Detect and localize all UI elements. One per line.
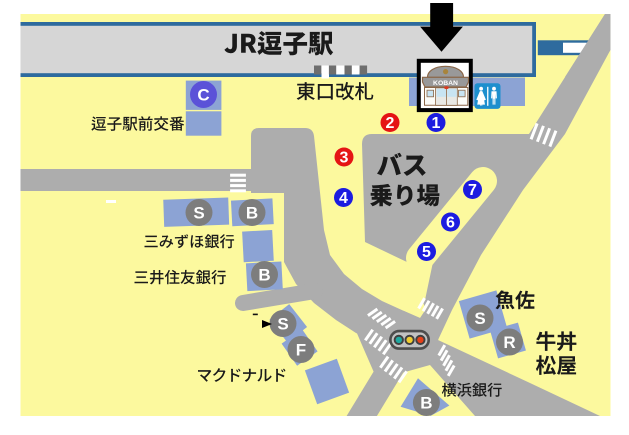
svg-text:B: B (420, 394, 432, 413)
svg-text:C: C (197, 86, 209, 105)
svg-text:1: 1 (432, 115, 441, 132)
svg-text:2: 2 (386, 115, 395, 132)
svg-text:7: 7 (468, 182, 477, 199)
svg-text:S: S (474, 309, 485, 328)
svg-text:S: S (193, 204, 204, 223)
svg-text:B: B (258, 266, 270, 285)
svg-text:4: 4 (339, 190, 348, 207)
svg-text:6: 6 (446, 215, 455, 232)
svg-text:KOBAN: KOBAN (433, 80, 458, 87)
svg-text:F: F (296, 341, 306, 360)
svg-text:S: S (277, 315, 288, 334)
svg-text:R: R (503, 333, 515, 352)
svg-text:5: 5 (422, 244, 431, 261)
svg-text:B: B (246, 204, 258, 223)
svg-text:3: 3 (340, 150, 349, 167)
